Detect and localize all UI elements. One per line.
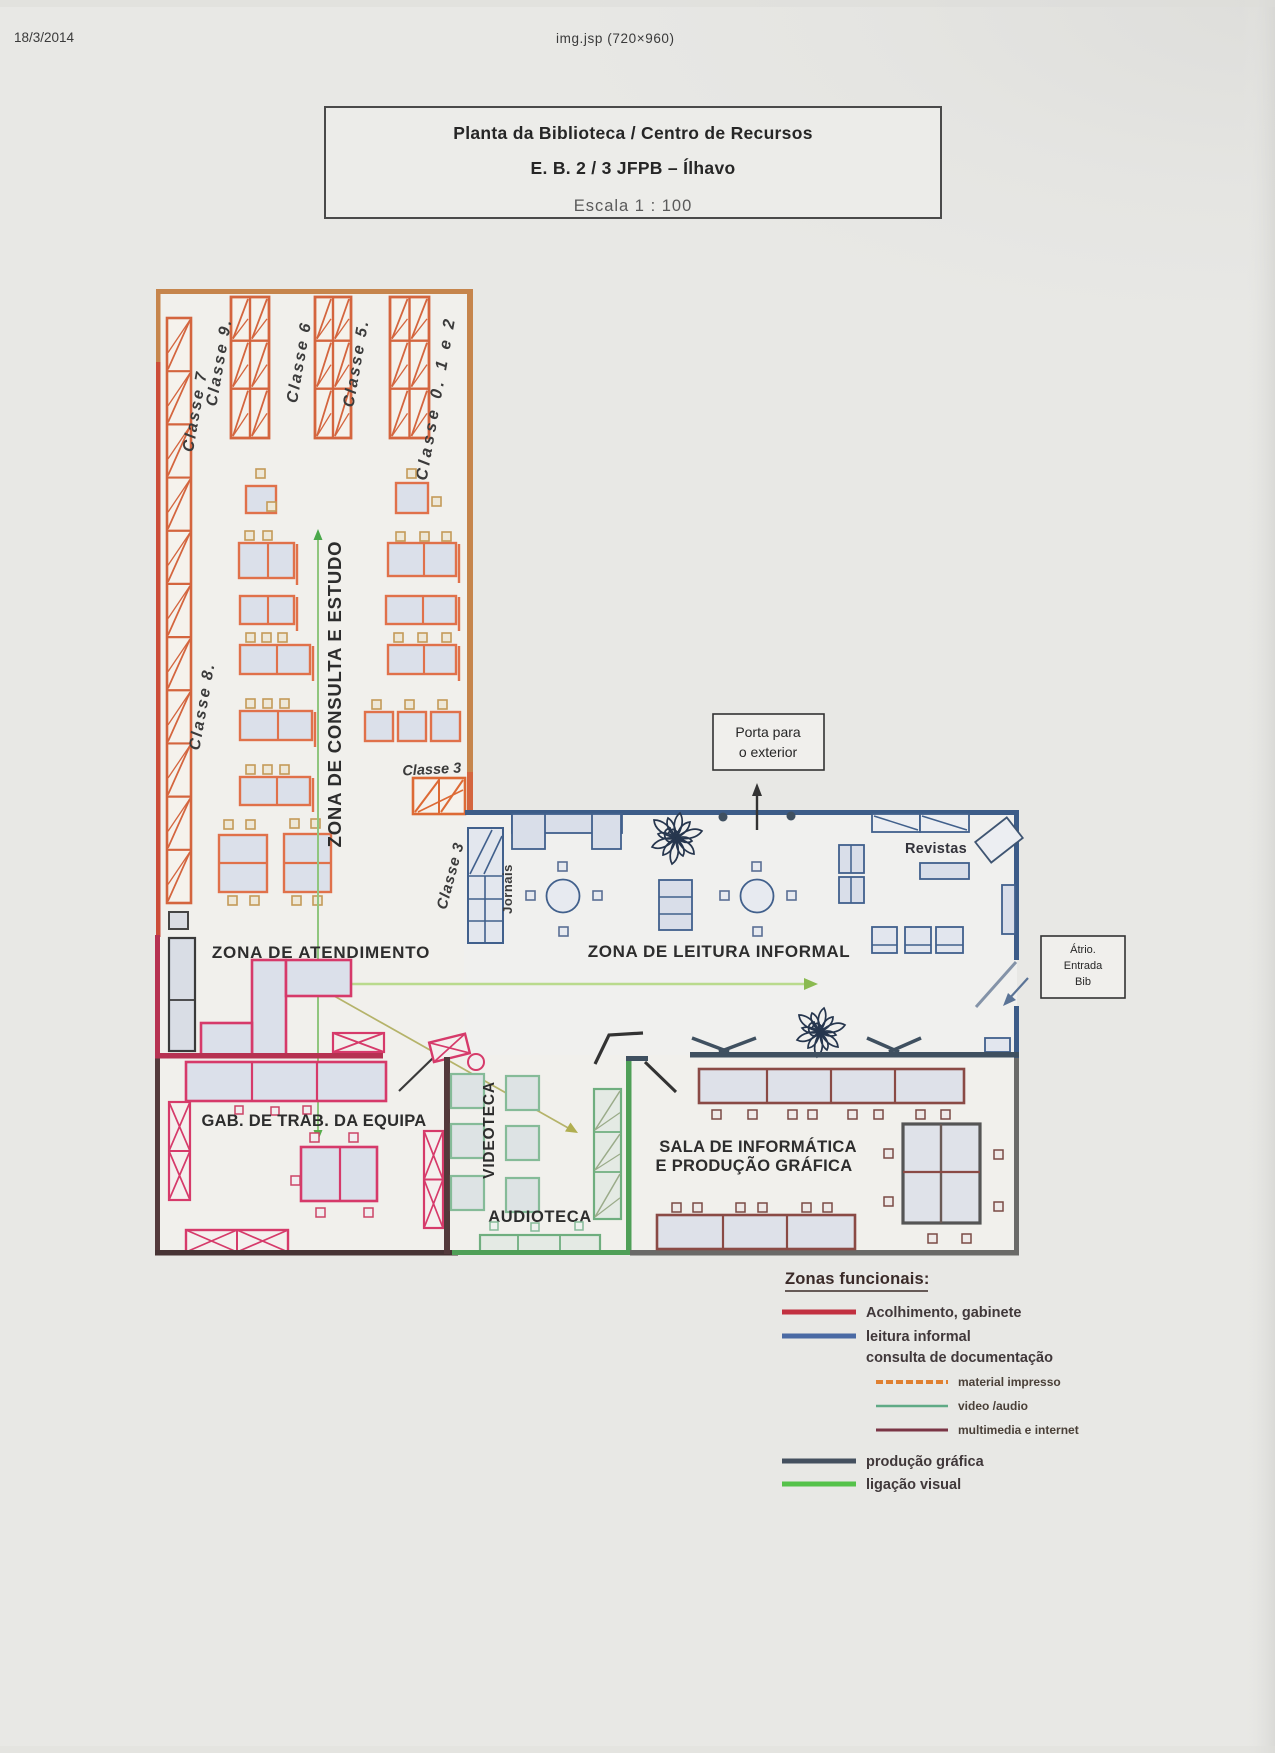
svg-text:Escala 1 : 100: Escala 1 : 100	[574, 197, 693, 215]
svg-text:18/3/2014: 18/3/2014	[14, 30, 75, 45]
svg-text:Classe 3: Classe 3	[402, 760, 462, 779]
svg-text:Bib: Bib	[1075, 976, 1091, 988]
svg-text:Jornais: Jornais	[500, 864, 515, 914]
svg-text:GAB. DE TRAB. DA EQUIPA: GAB. DE TRAB. DA EQUIPA	[201, 1112, 426, 1130]
svg-text:ligação visual: ligação visual	[866, 1477, 961, 1493]
svg-text:o exterior: o exterior	[739, 744, 798, 760]
svg-text:produção gráfica: produção gráfica	[866, 1454, 985, 1470]
svg-text:VIDEOTECA: VIDEOTECA	[481, 1081, 498, 1179]
svg-text:E PRODUÇÃO GRÁFICA: E PRODUÇÃO GRÁFICA	[656, 1155, 853, 1175]
svg-text:multimedia e internet: multimedia e internet	[958, 1423, 1079, 1437]
svg-text:img.jsp (720×960): img.jsp (720×960)	[556, 31, 675, 46]
svg-text:Entrada: Entrada	[1064, 960, 1103, 972]
svg-text:Zonas funcionais:: Zonas funcionais:	[785, 1270, 930, 1288]
svg-text:video /audio: video /audio	[958, 1399, 1028, 1413]
svg-text:ZONA DE LEITURA INFORMAL: ZONA DE LEITURA INFORMAL	[588, 942, 850, 961]
svg-text:Átrio.: Átrio.	[1070, 943, 1096, 956]
svg-text:SALA DE INFORMÁTICA: SALA DE INFORMÁTICA	[659, 1137, 857, 1156]
svg-text:consulta de documentação: consulta de documentação	[866, 1350, 1053, 1366]
svg-text:material impresso: material impresso	[958, 1375, 1061, 1389]
svg-text:Acolhimento, gabinete: Acolhimento, gabinete	[866, 1305, 1022, 1321]
svg-text:Porta para: Porta para	[735, 724, 801, 740]
svg-text:Planta da Biblioteca / Centro: Planta da Biblioteca / Centro de Recurso…	[453, 123, 812, 143]
svg-text:ZONA DE CONSULTA E ESTUDO: ZONA DE CONSULTA E ESTUDO	[324, 541, 345, 848]
svg-text:Revistas: Revistas	[905, 841, 967, 857]
svg-text:E. B. 2 / 3 JFPB – Ílhavo: E. B. 2 / 3 JFPB – Ílhavo	[531, 157, 736, 178]
svg-text:leitura informal: leitura informal	[866, 1329, 971, 1345]
